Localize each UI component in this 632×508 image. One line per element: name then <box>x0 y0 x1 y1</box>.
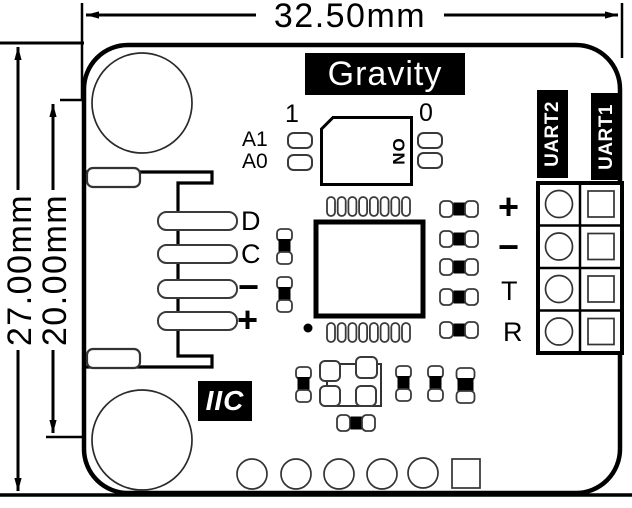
uart-pin-label-minus: − <box>498 226 519 268</box>
pcb-dimension-drawing: 32.50mm 27.00mm 20.00mm Gravity IIC UART… <box>0 0 632 508</box>
iic-interface-badge: IIC <box>198 381 252 421</box>
uart2-port-label: UART2 <box>537 90 568 178</box>
uart1-port-label: UART1 <box>591 93 622 180</box>
uart1-port-label-text: UART1 <box>596 104 618 170</box>
uart-pin-label-t: T <box>501 276 518 307</box>
dip-switch-channel-a0: A0 <box>242 150 268 174</box>
outer-height-dimension-label: 27.00mm <box>2 190 38 350</box>
mounting-hole-top-left <box>92 53 192 153</box>
connector-pin-label-d: D <box>241 206 261 237</box>
dip-switch-scale-1: 1 <box>285 100 299 129</box>
dip-switch-on-marking: ON <box>388 132 408 172</box>
dip-switch-channel-a1: A1 <box>242 128 268 152</box>
width-dimension-label: 32.50mm <box>256 0 444 33</box>
uart-pin-label-r: R <box>503 317 523 348</box>
crystal-oscillator <box>320 357 381 406</box>
gravity-logo: Gravity <box>305 53 465 95</box>
uart-terminal-grid <box>538 183 622 353</box>
uart-pin-label-plus: + <box>498 186 519 228</box>
ic-chip <box>316 222 423 316</box>
dip-switch-scale-0: 0 <box>419 99 433 128</box>
uart2-port-label-text: UART2 <box>542 101 564 167</box>
ic-pin1-dot <box>304 324 313 333</box>
connector-pin-label-plus: + <box>237 299 258 341</box>
inner-height-dimension-label: 20.00mm <box>37 190 73 350</box>
mounting-hole-bottom-left <box>92 390 192 490</box>
